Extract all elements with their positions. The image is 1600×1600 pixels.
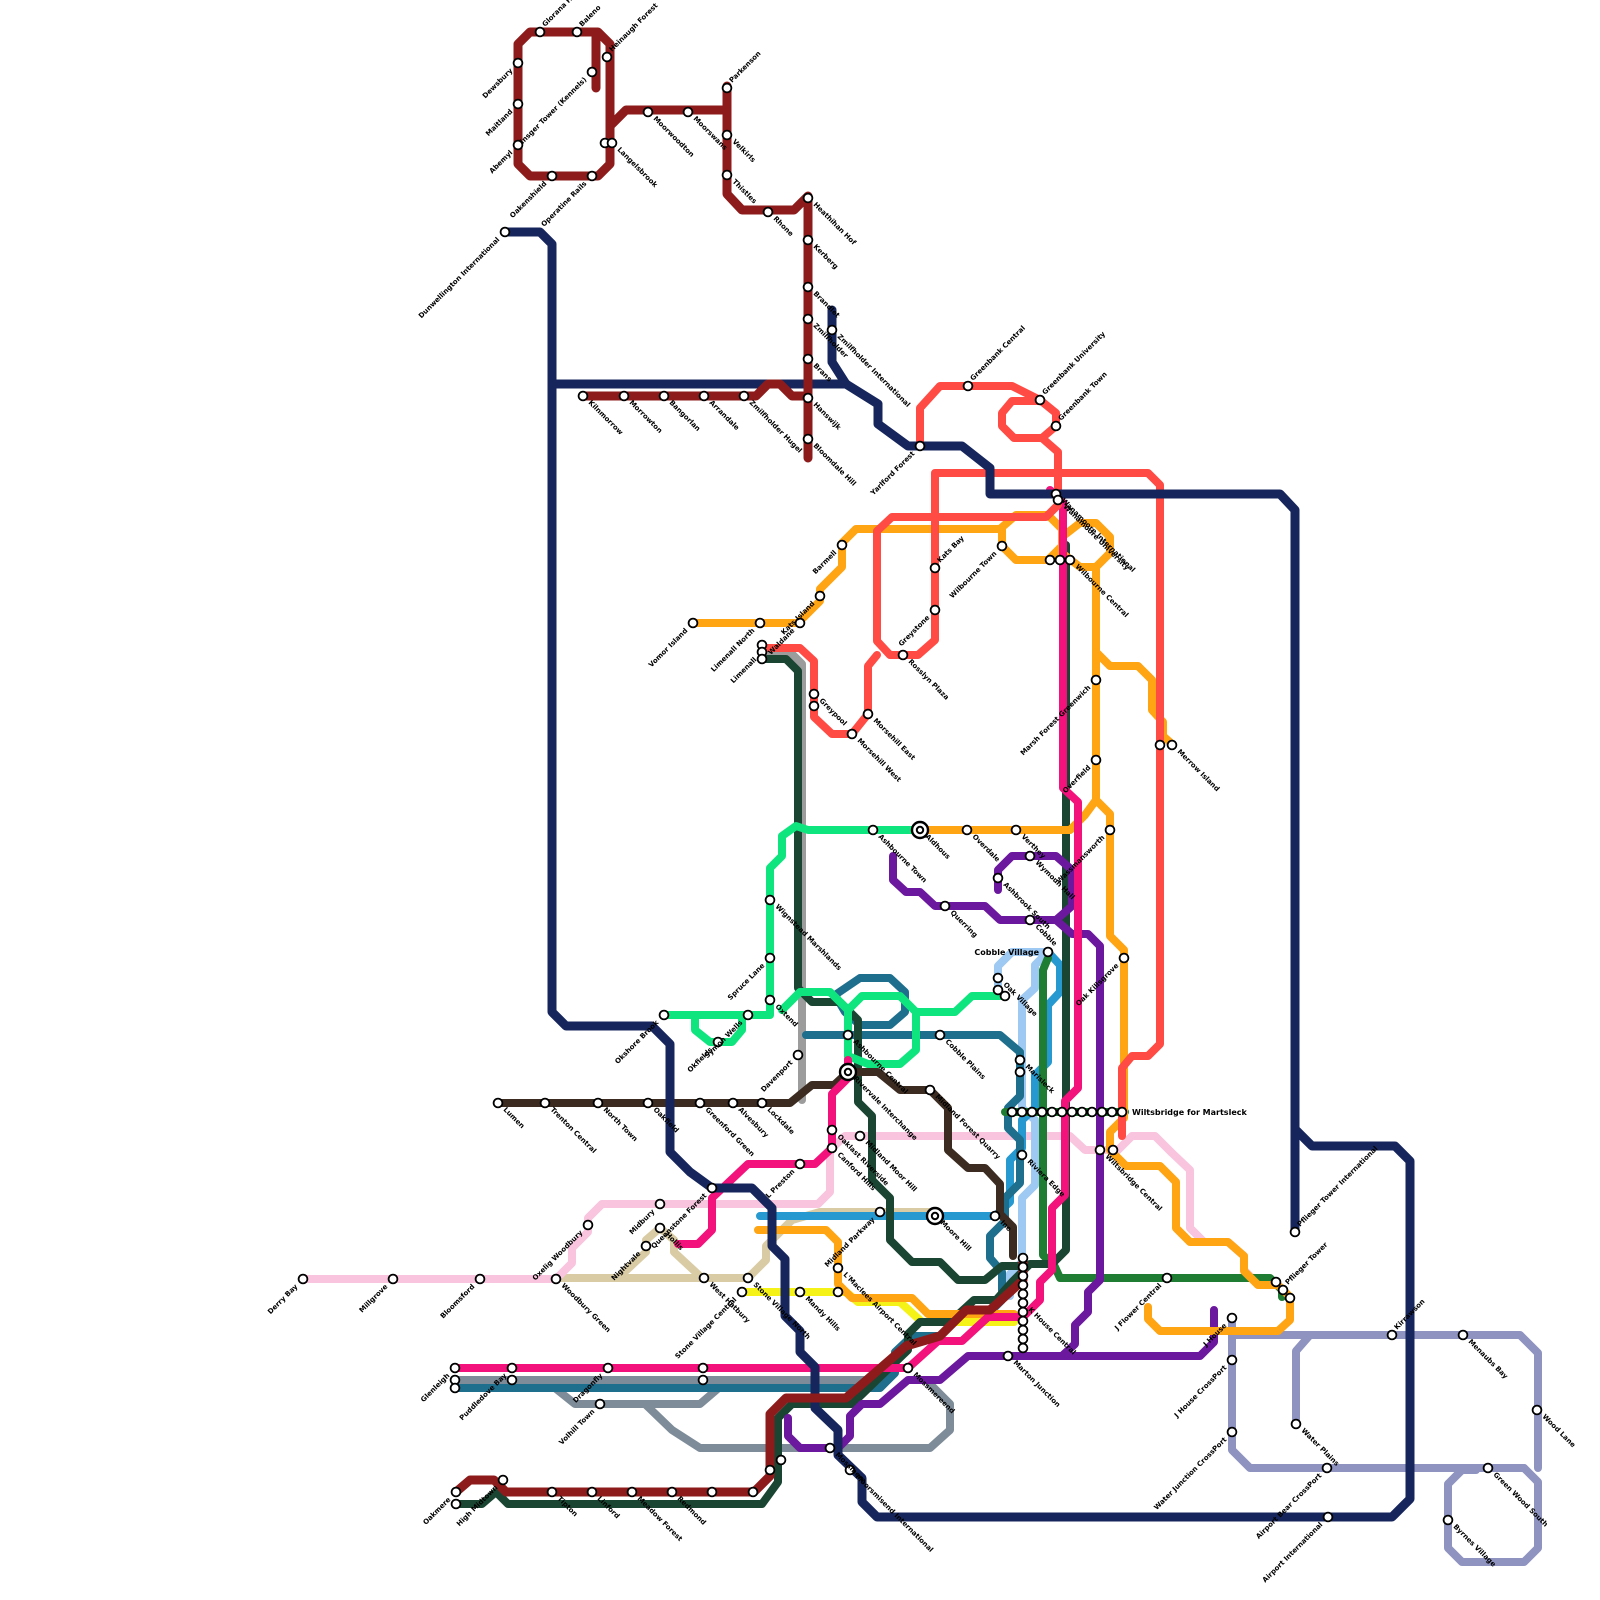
metro-line-red [1002, 400, 1056, 438]
station-marker [1272, 1278, 1281, 1287]
station-label: Water Junction CrossPort [1153, 1435, 1229, 1511]
station-marker [899, 651, 908, 660]
station-marker [452, 1500, 461, 1509]
station-marker [810, 690, 819, 699]
station-marker [766, 1466, 775, 1475]
station-label: Heinaugh Forest [608, 1, 660, 53]
station-marker [941, 902, 950, 911]
station-label: Morrowton [628, 399, 664, 435]
station-marker [668, 1488, 677, 1497]
station-marker [869, 826, 878, 835]
station-marker [758, 1099, 767, 1108]
station-label: Volhill Town [558, 1408, 597, 1447]
metro-map: Glorana HillsBalenoHeinaugh ForestPinsge… [0, 0, 1600, 1600]
station-marker [644, 1099, 653, 1108]
station-marker [584, 1221, 593, 1230]
station-marker [656, 1224, 665, 1233]
station-marker [700, 1274, 709, 1283]
station-marker [766, 996, 775, 1005]
station-marker [804, 236, 813, 245]
station-marker [796, 1288, 805, 1297]
station-marker [620, 392, 629, 401]
station-marker [723, 131, 732, 140]
station-label: Lumen [502, 1106, 526, 1130]
station-marker [1228, 1314, 1237, 1323]
station-marker [514, 100, 523, 109]
station-marker [699, 1376, 708, 1385]
station-label: Cobble Village [974, 948, 1039, 957]
station-marker [834, 1264, 843, 1273]
station-label: Ashbourne Town [877, 833, 929, 885]
station-label: Kats Island [780, 600, 817, 637]
station-marker [548, 1488, 557, 1497]
station-marker [838, 541, 847, 550]
station-marker [794, 1051, 803, 1060]
station-marker [834, 1288, 843, 1297]
station-label: Wiltsbridge Central [1104, 1153, 1164, 1213]
station-marker [596, 1400, 605, 1409]
station-marker [1004, 1352, 1013, 1361]
station-label: Davenport [759, 1058, 794, 1093]
station-marker [1291, 1228, 1300, 1237]
station-marker [848, 730, 857, 739]
station-marker [603, 53, 612, 62]
station-label: Trenton Central [549, 1106, 598, 1155]
station-marker [644, 108, 653, 117]
station-marker [804, 435, 813, 444]
station-marker [1019, 1326, 1028, 1335]
station-label: Dewsbury [481, 66, 515, 100]
station-marker [1163, 1274, 1172, 1283]
station-marker [804, 355, 813, 364]
station-marker [1019, 1254, 1028, 1263]
station-label: Stone Village Central [674, 1296, 739, 1361]
station-marker [588, 1488, 597, 1497]
station-marker [1008, 1108, 1017, 1117]
station-marker [766, 954, 775, 963]
station-label: Midland Parkway [823, 1215, 877, 1269]
station-marker [700, 392, 709, 401]
station-marker [1044, 948, 1053, 957]
station-label: Overdale [971, 833, 1002, 864]
station-marker [1058, 1108, 1067, 1117]
metro-map-canvas: Glorana HillsBalenoHeinaugh ForestPinsge… [0, 0, 1600, 1600]
station-marker [476, 1275, 485, 1284]
station-marker [804, 283, 813, 292]
station-marker [548, 172, 557, 181]
station-label: Oakmere [422, 1496, 453, 1527]
station-marker [588, 172, 597, 181]
station-label: Velkirls [731, 138, 757, 164]
station-label: Parkenson [728, 50, 763, 85]
station-marker [451, 1384, 460, 1393]
station-marker [738, 1288, 747, 1297]
station-label: Baleno [578, 4, 603, 29]
station-marker [552, 1275, 561, 1284]
station-label: Millgrove [358, 1283, 390, 1315]
metro-line-lavender [1232, 1318, 1524, 1468]
station-marker [1109, 1146, 1118, 1155]
station-marker [1106, 826, 1115, 835]
station-marker [494, 1099, 503, 1108]
station-marker [796, 1160, 805, 1169]
station-marker [994, 986, 1003, 995]
station-marker [744, 1274, 753, 1283]
station-marker [514, 59, 523, 68]
station-label: Cobble Plains [944, 1038, 987, 1081]
station-label: Kats Bay [936, 534, 966, 564]
station-marker [708, 1184, 717, 1193]
station-label: Bangorlan [668, 399, 702, 433]
station-marker [628, 1488, 637, 1497]
station-marker [764, 208, 773, 217]
station-marker [451, 1364, 460, 1373]
station-marker [499, 1476, 508, 1485]
station-marker [1459, 1331, 1468, 1340]
station-marker [660, 1011, 669, 1020]
station-marker [1096, 1146, 1105, 1155]
station-marker [699, 1364, 708, 1373]
station-marker [1228, 1428, 1237, 1437]
station-label: Wilbourne Central [1074, 563, 1130, 619]
station-label: Bloomsford [439, 1283, 477, 1321]
station-label: Marsh Forest Greenwich [1019, 684, 1092, 757]
station-marker [501, 228, 510, 237]
interchange-marker-inner [917, 827, 923, 833]
station-marker [1026, 852, 1035, 861]
station-marker [994, 874, 1003, 883]
station-marker [816, 592, 825, 601]
station-marker [1036, 396, 1045, 405]
station-marker [1292, 1420, 1301, 1429]
station-marker [998, 542, 1007, 551]
station-label: Menaubs Bay [1467, 1338, 1510, 1381]
station-marker [1038, 1108, 1047, 1117]
station-marker [876, 1208, 885, 1217]
station-marker [766, 896, 775, 905]
station-label: Wood Lane [1541, 1413, 1578, 1450]
station-marker [1026, 916, 1035, 925]
station-marker [1118, 1108, 1127, 1117]
station-marker [1168, 741, 1177, 750]
station-marker [810, 702, 819, 711]
station-marker [696, 1099, 705, 1108]
station-label: Maitland [484, 108, 514, 138]
station-label: Pinsger Tower (Kennels) [515, 76, 588, 149]
station-label: Langelsbrook [616, 146, 660, 190]
station-marker [689, 619, 698, 628]
station-marker [994, 974, 1003, 983]
station-label: North Town [602, 1106, 639, 1143]
station-label: Mossmere [834, 1451, 868, 1485]
station-label: Lockdale [766, 1106, 797, 1137]
station-marker [1012, 826, 1021, 835]
station-label: Kerberg [812, 243, 840, 271]
station-marker [916, 442, 925, 451]
station-marker [508, 1364, 517, 1373]
station-marker [723, 171, 732, 180]
station-marker [594, 1099, 603, 1108]
station-marker [1324, 1513, 1333, 1522]
station-label: J House CrossPort [1172, 1363, 1229, 1420]
station-marker [1056, 556, 1065, 565]
station-marker [573, 28, 582, 37]
station-marker [729, 1099, 738, 1108]
station-label: Derry Bay [266, 1282, 299, 1315]
station-marker [828, 326, 837, 335]
station-marker [1019, 1344, 1028, 1353]
metro-line-maroon [610, 110, 727, 126]
metro-line-forest [762, 659, 1020, 1280]
station-label: Wignstead Marshlands [774, 903, 843, 972]
station-marker [608, 139, 617, 148]
station-marker [541, 1099, 550, 1108]
station-marker [804, 194, 813, 203]
station-marker [964, 382, 973, 391]
station-marker [1088, 1108, 1097, 1117]
station-marker [1484, 1464, 1493, 1473]
station-marker [828, 1144, 837, 1153]
station-marker [1279, 1286, 1288, 1295]
station-label: Vomor Island [647, 627, 689, 669]
station-label: Greenbank Central [969, 324, 1027, 382]
station-marker [856, 1132, 865, 1141]
station-label: Marton Junction [1012, 1359, 1062, 1409]
station-marker [1019, 1335, 1028, 1344]
station-marker [1078, 1108, 1087, 1117]
station-label: Heathihan Hof [812, 201, 859, 248]
station-marker [1068, 1108, 1077, 1117]
station-marker [1533, 1406, 1542, 1415]
station-marker [604, 1364, 613, 1373]
station-marker [508, 1376, 517, 1385]
station-label: Wiltsbridge for Martsleck [1132, 1108, 1247, 1117]
station-marker [931, 606, 940, 615]
station-marker [1323, 1464, 1332, 1473]
station-marker [1019, 1263, 1028, 1272]
station-label: Kilnmorrow [587, 399, 625, 437]
station-label: Brandlet [812, 290, 842, 320]
station-marker [1156, 741, 1165, 750]
station-label: Woodbury Green [560, 1282, 612, 1334]
station-label: Bloomdale Hill [812, 442, 858, 488]
station-marker [804, 394, 813, 403]
station-label: Midland Forest Quarry [934, 1093, 1003, 1162]
station-marker [756, 619, 765, 628]
station-marker [1018, 1108, 1027, 1117]
metro-line-lavender [1448, 1468, 1538, 1562]
station-marker [1052, 422, 1061, 431]
station-label: Querring [949, 909, 979, 939]
station-marker [1054, 496, 1063, 505]
station-label: Moorwoodton [652, 115, 696, 159]
station-marker [1228, 1356, 1237, 1365]
station-marker [1019, 1281, 1028, 1290]
station-marker [684, 108, 693, 117]
station-marker [936, 1031, 945, 1040]
station-label: Glenleigh [419, 1372, 451, 1404]
station-marker [299, 1275, 308, 1284]
metro-line-lavender [1232, 1335, 1538, 1468]
station-label: Water Plains [1300, 1427, 1341, 1468]
station-marker [723, 84, 732, 93]
station-label: Redmond [676, 1495, 708, 1527]
station-marker [740, 392, 749, 401]
station-label: Pflieger Tower [1284, 1240, 1330, 1286]
station-label: Abemyl [488, 149, 514, 175]
station-label: Wilbourne Town [948, 550, 998, 600]
station-marker [1444, 1516, 1453, 1525]
station-marker [749, 1488, 758, 1497]
station-label: Zmilfholder Hugel [748, 399, 804, 455]
station-marker [1048, 1108, 1057, 1117]
station-label: Limenall [729, 656, 758, 685]
metro-line-lavender [1296, 1335, 1310, 1424]
station-marker [1108, 1108, 1117, 1117]
station-label: Rhone [772, 215, 795, 238]
station-marker [926, 1086, 935, 1095]
station-label: L Preston [764, 1168, 796, 1200]
station-marker [1388, 1331, 1397, 1340]
station-marker [963, 826, 972, 835]
station-marker [389, 1275, 398, 1284]
station-label: Rosslyn Plaza [907, 658, 951, 702]
station-marker [656, 1200, 665, 1209]
station-marker [931, 564, 940, 573]
station-marker [536, 28, 545, 37]
station-marker [1019, 1317, 1028, 1326]
station-marker [1092, 676, 1101, 685]
station-label: Arrandale [708, 399, 741, 432]
station-marker [1019, 1308, 1028, 1317]
station-marker [1018, 1151, 1027, 1160]
station-marker [744, 1011, 753, 1020]
station-marker [1120, 954, 1129, 963]
station-marker [1046, 556, 1055, 565]
station-label: Spruce Lane [726, 962, 766, 1002]
station-marker [1016, 1068, 1025, 1077]
station-marker [452, 1488, 461, 1497]
station-marker [904, 1364, 913, 1373]
station-marker [828, 1126, 837, 1135]
station-label: Mandy Hills [804, 1295, 842, 1333]
station-label: Glorana Hills [541, 0, 582, 28]
metro-line-spring [916, 996, 1005, 1012]
station-marker [579, 392, 588, 401]
station-marker [1019, 1272, 1028, 1281]
station-marker [1016, 1056, 1025, 1065]
station-label: K House Central [1027, 1306, 1078, 1357]
station-marker [1066, 556, 1075, 565]
station-marker [804, 315, 813, 324]
station-marker [758, 655, 767, 664]
station-label: Hanswijk [812, 401, 843, 432]
station-marker [708, 1488, 717, 1497]
interchange-marker-inner [932, 1213, 938, 1219]
station-marker [660, 392, 669, 401]
station-marker [991, 1212, 1000, 1221]
station-marker [826, 1444, 835, 1453]
station-marker [1098, 1108, 1107, 1117]
station-marker [1019, 1299, 1028, 1308]
station-marker [1092, 756, 1101, 765]
station-marker [588, 68, 597, 77]
station-marker [1028, 1108, 1037, 1117]
station-label: Yarlford Forest [868, 449, 916, 497]
station-label: Pflieger Tower International [1296, 1145, 1380, 1229]
station-marker [642, 1242, 651, 1251]
station-label: Operatine Rails [540, 180, 589, 229]
station-label: Merrow Island [1176, 748, 1221, 793]
station-label: Moore Hill [939, 1219, 973, 1253]
station-marker [844, 1031, 853, 1040]
station-label: Dunwellington International [417, 236, 501, 320]
station-marker [777, 1456, 786, 1465]
station-marker [1019, 1290, 1028, 1299]
station-marker [1286, 1294, 1295, 1303]
station-label: Aldhous [924, 833, 952, 861]
interchange-marker-inner [845, 1069, 851, 1075]
station-label: Oakenshield [508, 180, 548, 220]
station-marker [514, 141, 523, 150]
station-marker [864, 710, 873, 719]
